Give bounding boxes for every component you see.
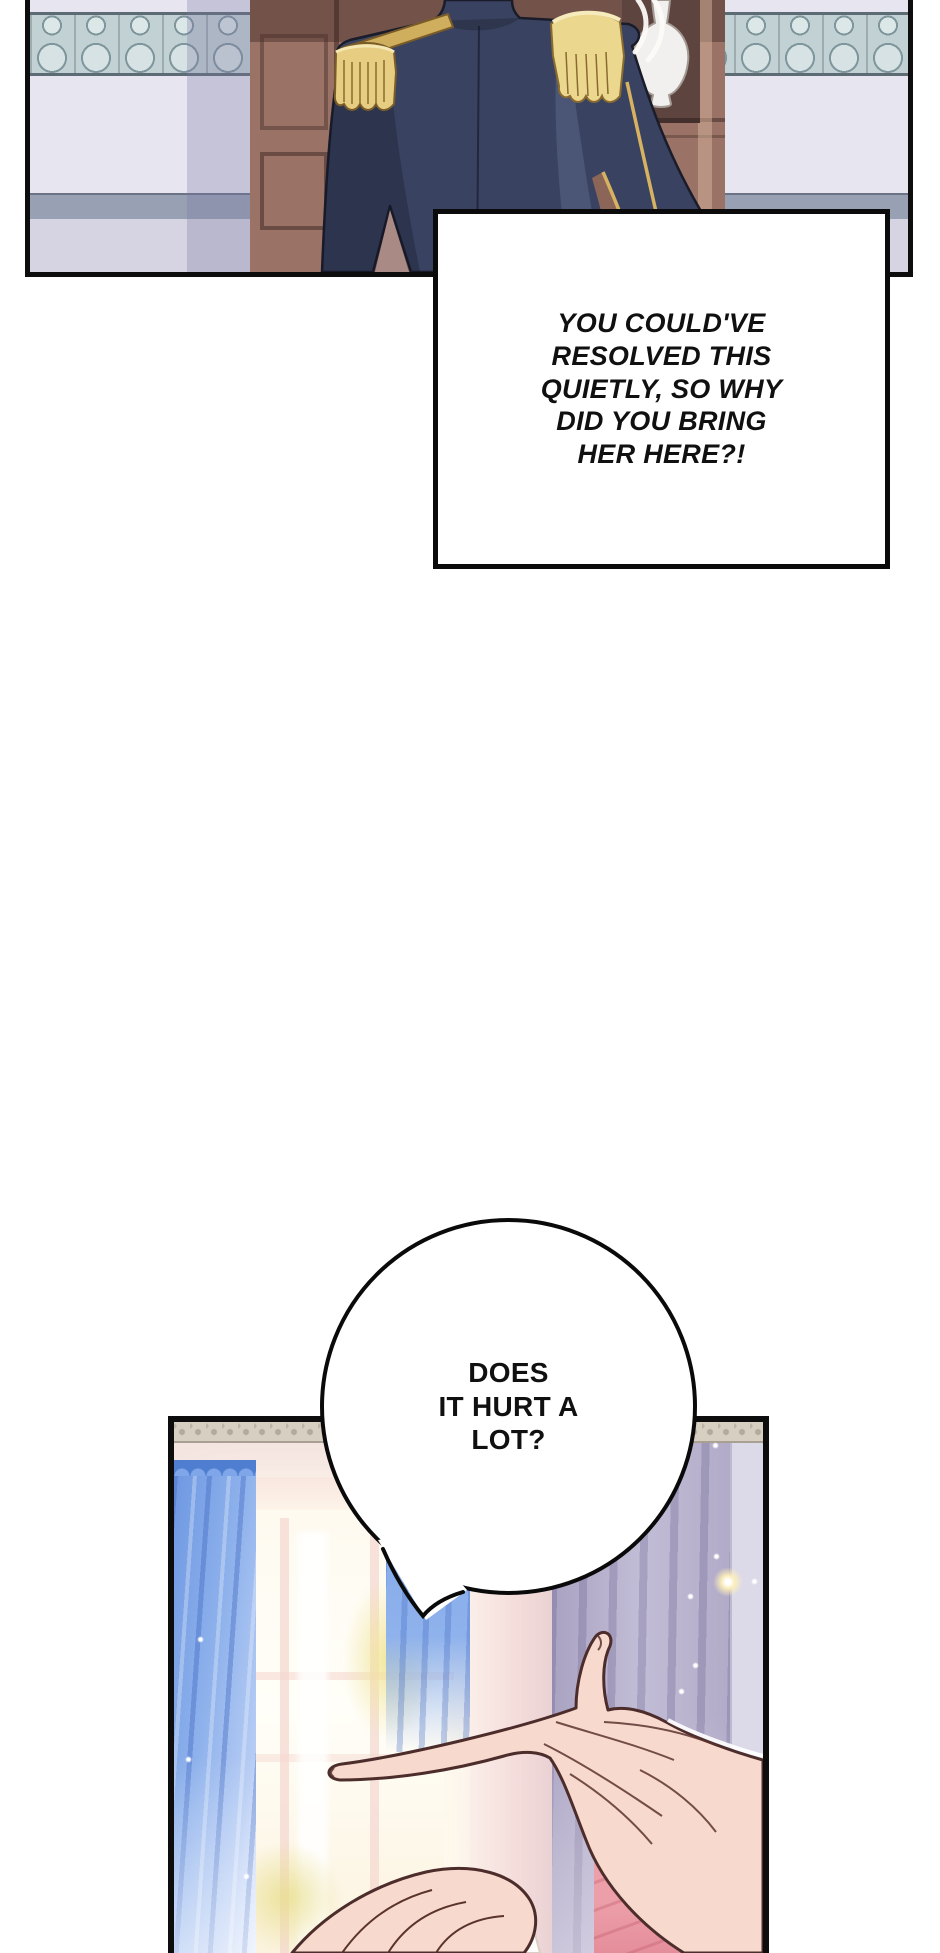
speech-bubble-shout: YOU COULD'VE RESOLVED THIS QUIETLY, SO W…	[433, 209, 890, 569]
hand-lower	[292, 1868, 536, 1953]
comic-page: YOU COULD'VE RESOLVED THIS QUIETLY, SO W…	[0, 0, 940, 1953]
epaulette-right	[551, 13, 624, 102]
speech-bubble-shout-text: YOU COULD'VE RESOLVED THIS QUIETLY, SO W…	[541, 307, 783, 472]
speech-bubble-ask-text: DOES IT HURT A LOT?	[438, 1356, 578, 1457]
speech-bubble-tail	[370, 1530, 480, 1625]
vase-swirl-lines	[635, 0, 662, 60]
tail-fill	[378, 1534, 467, 1620]
